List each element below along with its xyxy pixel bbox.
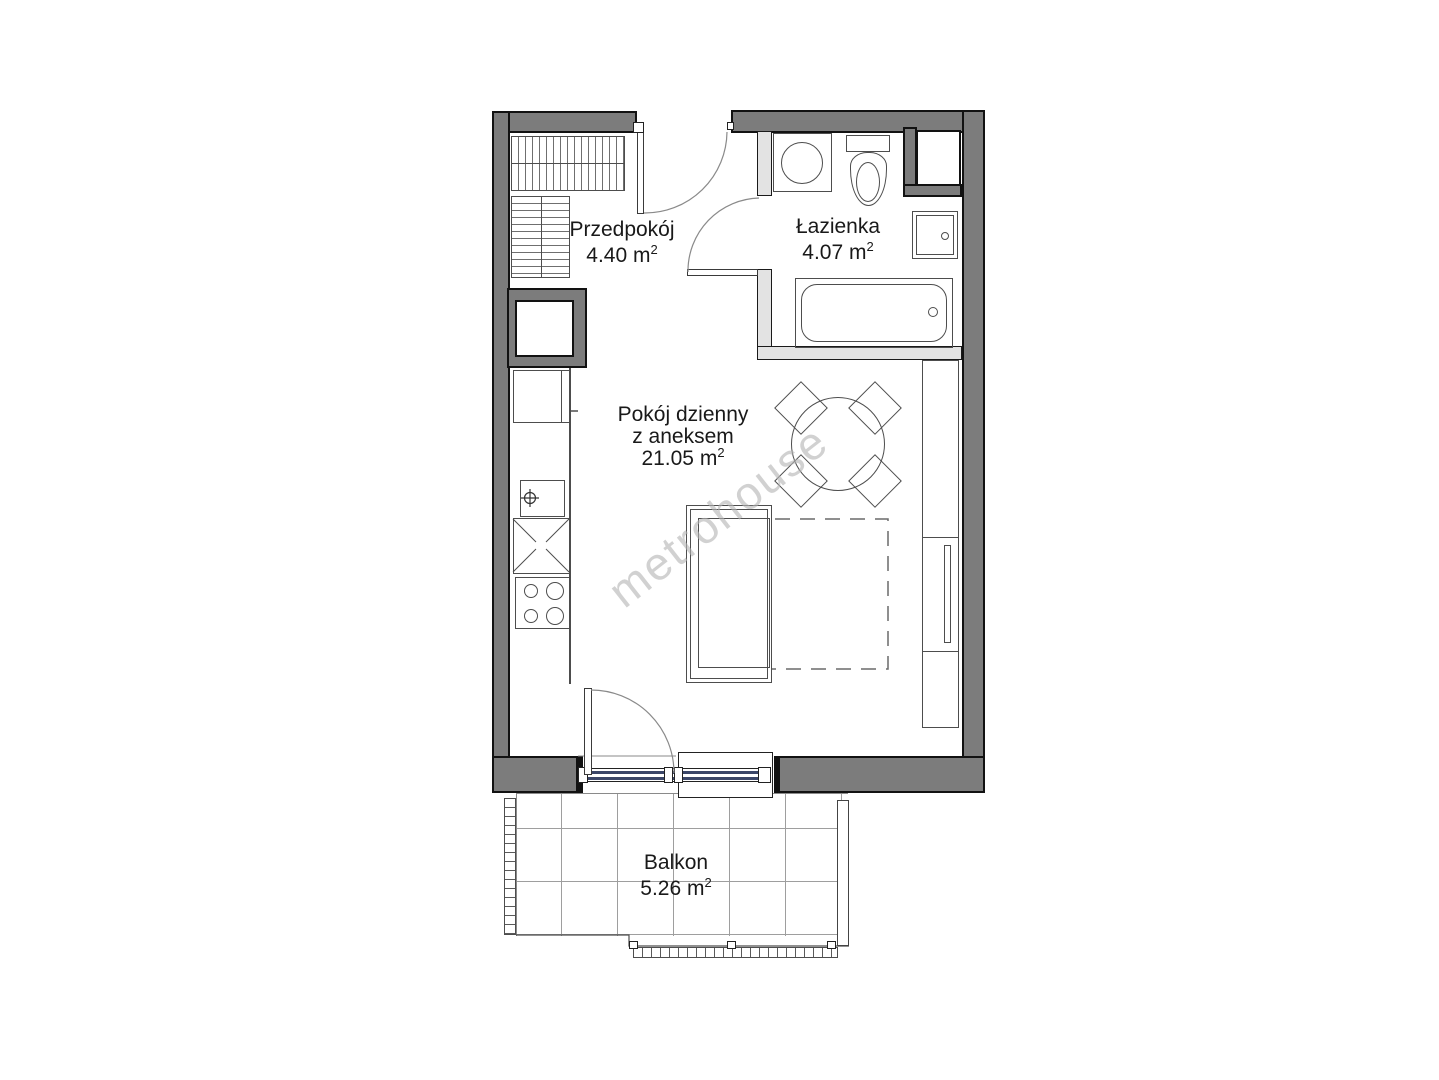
room-area: 4.40 m2	[569, 243, 674, 269]
burner	[524, 584, 538, 598]
sink-drain	[941, 232, 949, 240]
room-label-balcony: Balkon 5.26 m2	[640, 850, 711, 902]
kitchen-sink-icon	[520, 480, 565, 517]
toilet-bowl-inner	[856, 162, 880, 202]
room-area: 5.26 m2	[640, 876, 711, 902]
balcony-slab-edge	[516, 935, 849, 946]
wall-top-left	[492, 111, 637, 133]
wardrobe-right-divider	[922, 537, 959, 538]
wall-bottom-right	[775, 756, 985, 793]
balcony-door-arc	[591, 690, 674, 773]
entrance-door-leaf	[637, 126, 644, 214]
fridge-door-line	[561, 370, 562, 423]
bathroom-door-leaf	[687, 269, 758, 276]
area-superscript: 2	[650, 242, 657, 257]
balcony-railing-left	[504, 798, 516, 935]
window-frame-post	[664, 767, 673, 783]
burner	[546, 582, 564, 600]
wall-left	[492, 111, 510, 793]
wall-right	[962, 110, 985, 793]
balcony-door-leaf	[584, 688, 592, 775]
room-name: Pokój dzienny	[618, 404, 749, 426]
railing-post	[827, 941, 836, 949]
wardrobe-shelves-line	[541, 196, 542, 278]
door-frame-post	[633, 122, 644, 133]
door-frame-post	[727, 122, 734, 130]
wardrobe-right-divider	[922, 651, 959, 652]
window-frame-post	[674, 767, 683, 783]
burner	[524, 609, 538, 623]
room-label-bathroom: Łazienka 4.07 m2	[796, 214, 880, 266]
shaft-block-inner	[515, 300, 574, 357]
toilet-cistern	[846, 135, 890, 152]
bath-wall-post-top	[757, 131, 772, 196]
bathtub-inner	[801, 284, 947, 342]
room-name: Łazienka	[796, 214, 880, 240]
area-superscript: 2	[704, 875, 711, 890]
bathtub-drain	[928, 307, 938, 317]
wardrobe-handle	[944, 545, 951, 643]
shaft-niche	[916, 130, 961, 186]
room-label-hallway: Przedpokój 4.40 m2	[569, 217, 674, 269]
balcony-side-panel	[837, 800, 849, 946]
bathroom-door-arc	[688, 198, 759, 272]
wall-end-cap	[774, 756, 780, 793]
washing-machine-drum	[781, 142, 823, 184]
room-name: z aneksem	[618, 426, 749, 448]
window-frame-post	[758, 767, 771, 783]
room-area: 21.05 m2	[618, 448, 749, 470]
floorplan-canvas: Przedpokój 4.40 m2 Łazienka 4.07 m2 Pokó…	[0, 0, 1439, 1080]
room-area: 4.07 m2	[796, 240, 880, 266]
burner	[546, 607, 564, 625]
entrance-door-arc	[644, 132, 727, 213]
bath-wall-bottom	[757, 346, 962, 360]
railing-post	[727, 941, 736, 949]
railing-post	[629, 941, 638, 949]
room-name: Przedpokój	[569, 217, 674, 243]
wardrobe-right	[922, 360, 959, 728]
area-superscript: 2	[866, 239, 873, 254]
room-name: Balkon	[640, 850, 711, 876]
area-superscript: 2	[717, 445, 724, 460]
wardrobe-rail-line	[511, 163, 625, 164]
room-label-living: Pokój dzienny z aneksem 21.05 m2	[618, 404, 749, 470]
wall-bottom-left	[492, 756, 582, 793]
kitchen-corner-cabinet	[513, 518, 570, 574]
